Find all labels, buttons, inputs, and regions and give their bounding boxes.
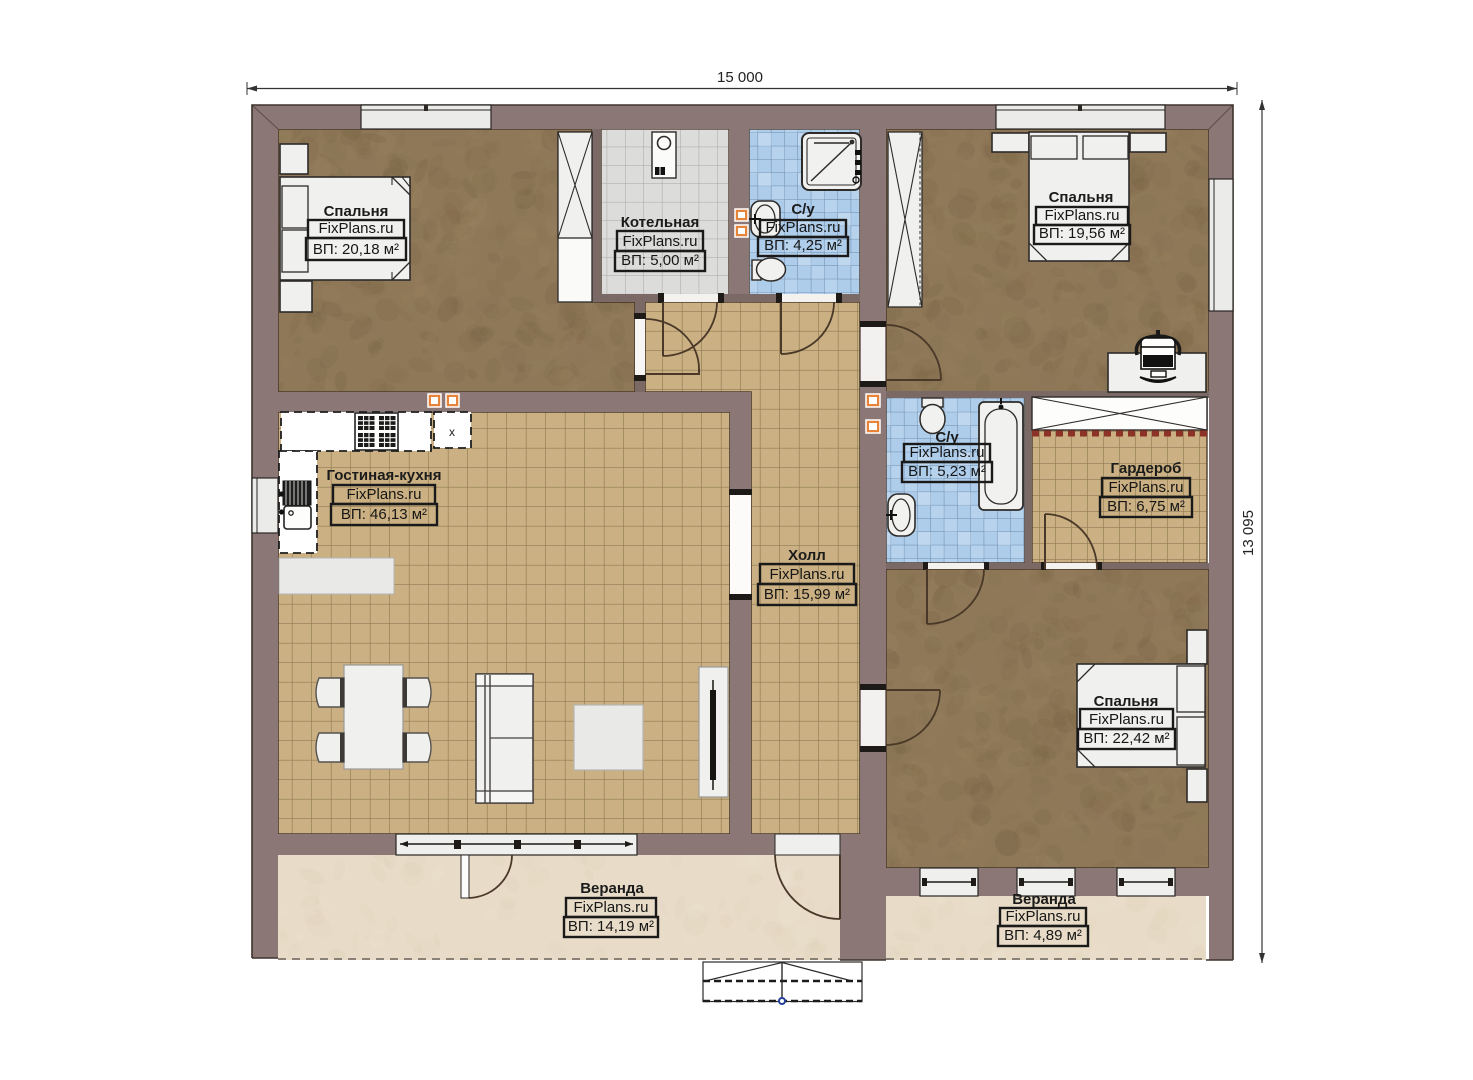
svg-text:FixPlans.ru: FixPlans.ru [909, 444, 984, 461]
svg-text:Веранда: Веранда [1012, 891, 1076, 908]
svg-text:Веранда: Веранда [580, 880, 644, 897]
svg-text:ВП: 46,13 м²: ВП: 46,13 м² [341, 506, 427, 523]
svg-text:ВП: 5,23 м²: ВП: 5,23 м² [908, 463, 986, 480]
svg-text:ВП: 14,19 м²: ВП: 14,19 м² [568, 918, 654, 935]
svg-text:ВП: 20,18 м²: ВП: 20,18 м² [313, 241, 399, 258]
svg-text:С/у: С/у [791, 201, 815, 218]
svg-text:FixPlans.ru: FixPlans.ru [622, 233, 697, 250]
svg-text:13 095: 13 095 [1240, 510, 1257, 556]
svg-text:FixPlans.ru: FixPlans.ru [1005, 908, 1080, 925]
svg-text:ВП: 4,89 м²: ВП: 4,89 м² [1004, 927, 1082, 944]
svg-text:FixPlans.ru: FixPlans.ru [765, 219, 840, 236]
svg-text:Спальня: Спальня [324, 203, 389, 220]
svg-text:Холл: Холл [788, 547, 826, 564]
svg-text:ВП: 22,42 м²: ВП: 22,42 м² [1083, 730, 1169, 747]
svg-text:x: x [449, 425, 455, 439]
svg-text:FixPlans.ru: FixPlans.ru [318, 220, 393, 237]
svg-text:ВП: 4,25 м²: ВП: 4,25 м² [764, 237, 842, 254]
svg-text:Гардероб: Гардероб [1111, 460, 1182, 477]
svg-text:ВП: 6,75 м²: ВП: 6,75 м² [1107, 498, 1185, 515]
svg-text:ВП: 15,99 м²: ВП: 15,99 м² [764, 586, 850, 603]
svg-text:FixPlans.ru: FixPlans.ru [769, 566, 844, 583]
svg-text:FixPlans.ru: FixPlans.ru [1044, 207, 1119, 224]
svg-text:Спальня: Спальня [1049, 189, 1114, 206]
svg-text:FixPlans.ru: FixPlans.ru [1108, 479, 1183, 496]
svg-text:Котельная: Котельная [621, 214, 700, 231]
svg-text:ВП: 5,00 м²: ВП: 5,00 м² [621, 252, 699, 269]
svg-text:Спальня: Спальня [1094, 693, 1159, 710]
svg-text:FixPlans.ru: FixPlans.ru [346, 486, 421, 503]
svg-text:Гостиная-кухня: Гостиная-кухня [327, 467, 442, 484]
svg-text:15 000: 15 000 [717, 69, 763, 86]
svg-text:ВП: 19,56 м²: ВП: 19,56 м² [1039, 225, 1125, 242]
svg-text:FixPlans.ru: FixPlans.ru [1089, 711, 1164, 728]
svg-text:FixPlans.ru: FixPlans.ru [573, 899, 648, 916]
